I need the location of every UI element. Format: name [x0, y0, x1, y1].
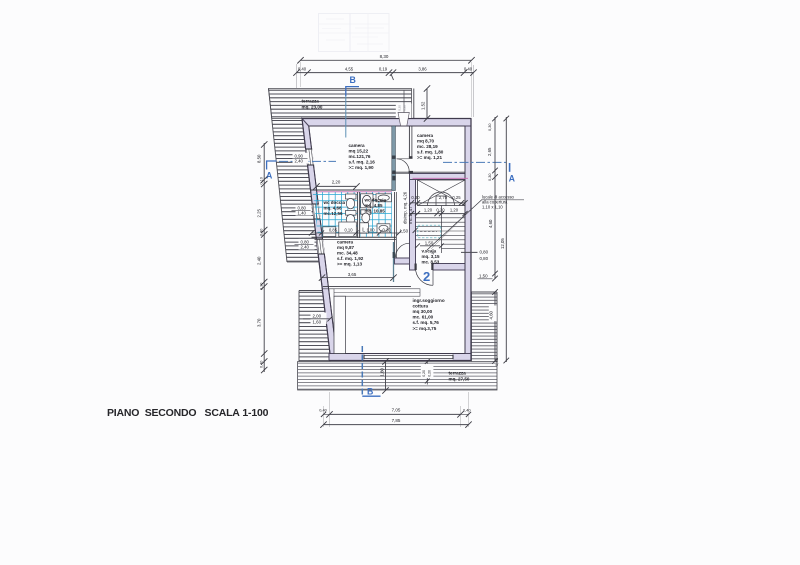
svg-text:mq 30,00: mq 30,00: [413, 309, 433, 314]
svg-text:mq. 4,66: mq. 4,66: [324, 206, 343, 211]
svg-text:0,20: 0,20: [428, 370, 432, 377]
svg-text:1,20: 1,20: [450, 207, 459, 212]
svg-text:>= mq. 1,21: >= mq. 1,21: [417, 155, 442, 160]
svg-text:lucale di accesso: lucale di accesso: [482, 194, 515, 199]
svg-text:mq 9,87: mq 9,87: [337, 245, 355, 250]
svg-text:mc. 61,00: mc. 61,00: [413, 315, 434, 320]
svg-text:>= mq.3,75: >= mq.3,75: [413, 326, 437, 331]
svg-text:mq. 4,85: mq. 4,85: [365, 203, 384, 208]
svg-text:1,40: 1,40: [298, 211, 307, 216]
svg-text:4,60: 4,60: [489, 311, 494, 320]
svg-text:0,40: 0,40: [259, 361, 263, 368]
svg-text:mc.121,76: mc.121,76: [349, 154, 371, 159]
svg-text:mq. 23,00: mq. 23,00: [302, 104, 323, 109]
svg-text:4,60: 4,60: [488, 219, 493, 228]
svg-text:2,25: 2,25: [257, 209, 262, 218]
svg-text:1,80: 1,80: [379, 368, 384, 377]
svg-text:mq 15,22: mq 15,22: [349, 149, 369, 154]
svg-text:cottura: cottura: [413, 304, 429, 309]
svg-text:8,50: 8,50: [257, 154, 262, 163]
svg-text:0,10: 0,10: [259, 177, 263, 184]
svg-text:mc.11,47: mc.11,47: [408, 206, 413, 224]
svg-text:3,65: 3,65: [348, 272, 357, 277]
svg-text:2,65: 2,65: [487, 147, 492, 156]
svg-text:1,20: 1,20: [424, 207, 433, 212]
svg-text:s.f. mq. 2,16: s.f. mq. 2,16: [349, 160, 376, 165]
svg-text:2,40: 2,40: [301, 245, 310, 250]
svg-text:2: 2: [423, 269, 430, 284]
svg-text:0,85: 0,85: [329, 227, 338, 232]
svg-text:L: L: [362, 228, 365, 234]
svg-text:8,30: 8,30: [380, 54, 389, 59]
svg-text:0,30: 0,30: [259, 229, 263, 236]
svg-text:terrazza: terrazza: [302, 99, 320, 104]
svg-text:0,30: 0,30: [403, 105, 407, 111]
svg-text:4,55: 4,55: [345, 66, 354, 71]
svg-text:disimp. mq. 4,26: disimp. mq. 4,26: [403, 191, 408, 224]
svg-text:0,20: 0,20: [422, 370, 426, 377]
svg-text:>= mq. 1,90: >= mq. 1,90: [349, 165, 374, 170]
svg-text:B: B: [367, 387, 373, 397]
svg-text:mc. 28,19: mc. 28,19: [417, 144, 438, 149]
svg-text:7,85: 7,85: [392, 418, 401, 423]
svg-text:0,10: 0,10: [345, 227, 354, 232]
svg-text:s.f. mq. 1,92: s.f. mq. 1,92: [337, 256, 364, 261]
svg-text:wc doccia: wc doccia: [323, 200, 346, 205]
svg-text:mc. 8,53: mc. 8,53: [422, 260, 440, 265]
svg-text:0,10: 0,10: [383, 227, 392, 232]
svg-text:mc.12,56: mc.12,56: [324, 211, 344, 216]
svg-text:mq 8,70: mq 8,70: [417, 139, 435, 144]
svg-text:1,52: 1,52: [421, 101, 426, 110]
svg-text:0,40: 0,40: [494, 358, 499, 366]
svg-text:camera: camera: [337, 240, 354, 245]
svg-text:2,40: 2,40: [295, 159, 304, 164]
svg-text:2,00: 2,00: [313, 313, 322, 318]
svg-text:3,70: 3,70: [257, 318, 262, 327]
svg-text:0,30: 0,30: [487, 123, 492, 131]
svg-text:mc. 10,85: mc. 10,85: [365, 209, 386, 214]
svg-text:1,60: 1,60: [313, 319, 322, 324]
svg-text:12,05: 12,05: [500, 238, 505, 249]
svg-text:s.f. mq. 5,76: s.f. mq. 5,76: [413, 320, 440, 325]
svg-text:0,40: 0,40: [298, 66, 307, 71]
svg-text:B: B: [350, 75, 356, 85]
svg-text:camera: camera: [417, 133, 434, 138]
svg-text:2,70: 2,70: [439, 195, 448, 200]
svg-text:0,30: 0,30: [398, 105, 402, 111]
svg-text:wc doccia: wc doccia: [364, 198, 387, 203]
svg-text:camera: camera: [349, 143, 366, 148]
svg-text:3,86: 3,86: [418, 66, 427, 71]
svg-text:2,20: 2,20: [332, 180, 341, 185]
svg-text:A: A: [509, 174, 516, 184]
svg-text:PIANO SECONDO SCALA 1-100: PIANO SECONDO SCALA 1-100: [107, 407, 269, 419]
svg-text:mq. 27,50: mq. 27,50: [449, 376, 470, 381]
svg-text:0,40: 0,40: [463, 408, 471, 413]
svg-text:s.f. mq. 1,80: s.f. mq. 1,80: [417, 150, 444, 155]
svg-text:1,10 x 1,10: 1,10 x 1,10: [482, 204, 503, 209]
svg-text:>= mq. 1,13: >= mq. 1,13: [337, 262, 362, 267]
svg-text:1,00: 1,00: [367, 227, 376, 232]
svg-text:2,40: 2,40: [257, 256, 262, 265]
svg-text:1,50: 1,50: [479, 274, 488, 279]
svg-text:mc. 34,48: mc. 34,48: [337, 251, 358, 256]
svg-text:0,19: 0,19: [379, 66, 388, 71]
svg-text:0,80: 0,80: [480, 250, 489, 255]
svg-text:v.scala: v.scala: [422, 248, 437, 253]
svg-text:0,30: 0,30: [259, 283, 263, 290]
svg-text:A: A: [266, 171, 273, 181]
svg-text:ingr.soggiorno: ingr.soggiorno: [413, 298, 445, 303]
svg-text:terrazza: terrazza: [449, 371, 467, 376]
svg-text:0,30: 0,30: [487, 173, 492, 181]
svg-text:0,30: 0,30: [411, 195, 420, 200]
svg-text:7,05: 7,05: [392, 408, 401, 413]
svg-text:0,25: 0,25: [452, 195, 461, 200]
svg-text:0,80: 0,80: [480, 256, 489, 261]
